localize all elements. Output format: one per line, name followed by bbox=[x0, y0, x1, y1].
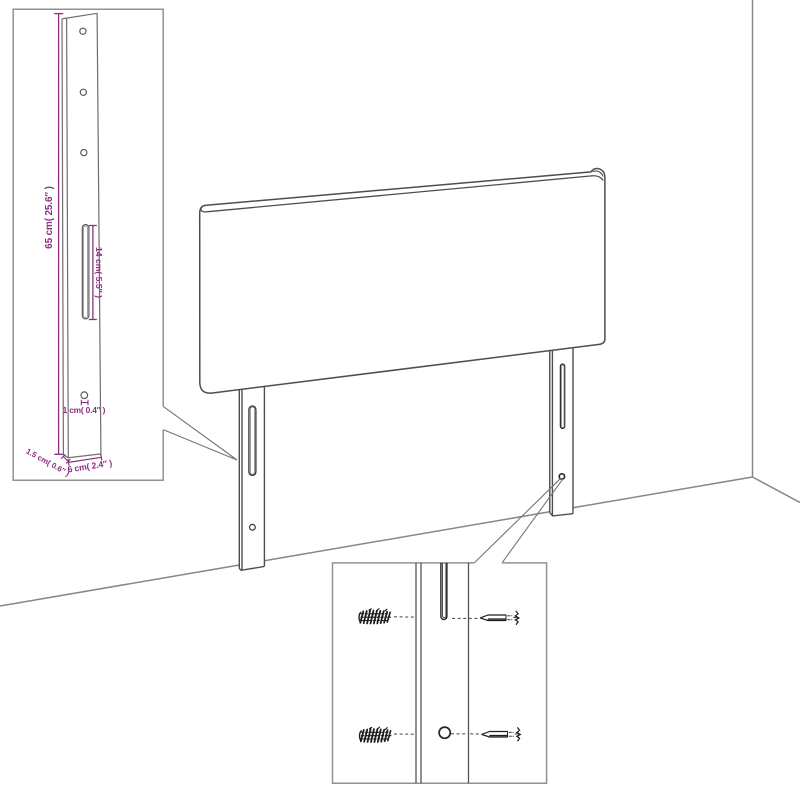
svg-text:65 cm( 25.6″ ): 65 cm( 25.6″ ) bbox=[44, 186, 55, 249]
svg-text:1 cm( 0.4″ ): 1 cm( 0.4″ ) bbox=[63, 405, 106, 415]
svg-text:14 cm( 5.5″ ): 14 cm( 5.5″ ) bbox=[94, 247, 104, 298]
